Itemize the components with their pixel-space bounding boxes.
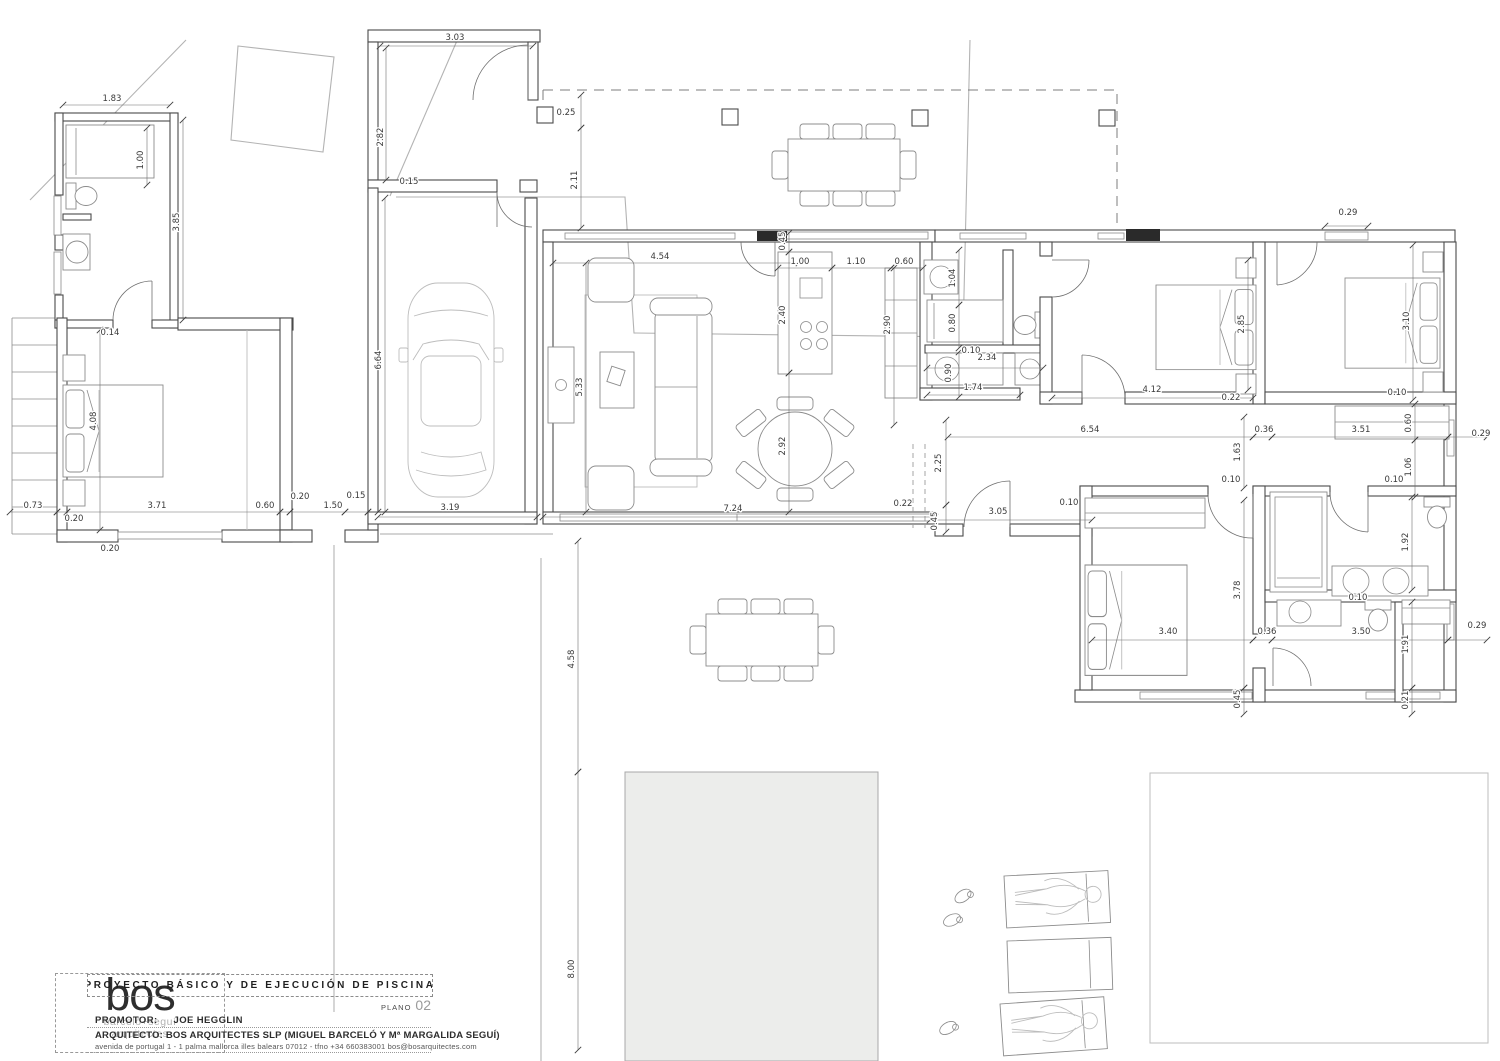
svg-text:3.19: 3.19 <box>441 503 460 513</box>
svg-text:2.92: 2.92 <box>778 437 788 456</box>
svg-text:1.92: 1.92 <box>1401 533 1411 552</box>
armchair <box>588 466 634 510</box>
svg-text:0.45: 0.45 <box>778 232 788 251</box>
plano-number: 02 <box>415 997 431 1013</box>
pool <box>625 772 878 1061</box>
svg-text:4.12: 4.12 <box>1143 385 1162 395</box>
entry-porch-room <box>368 30 540 180</box>
svg-text:0.73: 0.73 <box>24 501 43 511</box>
svg-text:0.10: 0.10 <box>1385 475 1404 485</box>
svg-text:8.00: 8.00 <box>567 960 577 979</box>
svg-text:6.54: 6.54 <box>1081 425 1100 435</box>
svg-text:0.45: 0.45 <box>1233 690 1243 709</box>
svg-text:0.60: 0.60 <box>895 257 914 267</box>
terrace-dining-table <box>772 124 916 206</box>
svg-text:4.54: 4.54 <box>651 252 670 262</box>
svg-text:0.36: 0.36 <box>1258 627 1277 637</box>
architect-address: avenida de portugal 1 - 1 palma mallorca… <box>95 1042 477 1051</box>
svg-text:0.15: 0.15 <box>347 491 366 501</box>
svg-text:2.82: 2.82 <box>376 128 386 147</box>
svg-text:3.50: 3.50 <box>1352 627 1371 637</box>
arquitecto-label: ARQUITECTO: <box>95 1030 163 1041</box>
svg-text:3.85: 3.85 <box>172 213 182 232</box>
svg-text:0.60: 0.60 <box>256 501 275 511</box>
svg-text:4.58: 4.58 <box>567 650 577 669</box>
svg-text:7.24: 7.24 <box>724 504 743 514</box>
svg-text:1.91: 1.91 <box>1401 635 1411 654</box>
svg-text:3.05: 3.05 <box>989 507 1008 517</box>
round-dining-table <box>735 397 855 501</box>
svg-text:4.08: 4.08 <box>89 412 99 431</box>
bedroom-middle <box>1052 258 1256 398</box>
svg-text:0.22: 0.22 <box>1222 393 1241 403</box>
svg-text:1.10: 1.10 <box>847 257 866 267</box>
floor-plan-sheet: 3.031.830.150.250.140.730.203.710.600.20… <box>0 0 1500 1061</box>
project-title: PROYECTO BÁSICO Y DE EJECUCIÓN DE PISCIN… <box>87 974 433 997</box>
tv-cabinet <box>548 347 574 423</box>
car <box>399 283 503 497</box>
svg-text:0.15: 0.15 <box>400 177 419 187</box>
right-paved-terrace <box>1150 773 1488 1043</box>
annex-bathroom <box>54 113 178 328</box>
svg-text:0.90: 0.90 <box>944 364 954 383</box>
svg-text:0.29: 0.29 <box>1468 621 1487 631</box>
svg-text:3.40: 3.40 <box>1159 627 1178 637</box>
sofa <box>650 298 712 476</box>
svg-text:0.60: 0.60 <box>1404 414 1414 433</box>
bathrooms-right <box>1270 492 1450 686</box>
arquitecto-line: ARQUITECTO: BOS ARQUITECTES SLP (MIGUEL … <box>95 1030 500 1041</box>
coffee-table <box>600 352 634 408</box>
divider <box>87 1052 431 1053</box>
svg-text:0.10: 0.10 <box>1060 498 1079 508</box>
svg-text:3.10: 3.10 <box>1402 312 1412 331</box>
svg-text:3.03: 3.03 <box>446 33 465 43</box>
svg-text:0.80: 0.80 <box>948 314 958 333</box>
svg-text:2.90: 2.90 <box>883 316 893 335</box>
svg-text:1.74: 1.74 <box>964 383 983 393</box>
svg-text:0.10: 0.10 <box>1388 388 1407 398</box>
svg-text:0.20: 0.20 <box>65 514 84 524</box>
svg-text:0.29: 0.29 <box>1339 208 1358 218</box>
svg-text:0.20: 0.20 <box>291 492 310 502</box>
svg-text:2.25: 2.25 <box>934 454 944 473</box>
svg-text:0.21: 0.21 <box>1401 691 1411 710</box>
divider <box>87 1027 431 1028</box>
garden-dining-table <box>690 599 834 681</box>
living-kitchen <box>543 230 935 528</box>
svg-text:0.20: 0.20 <box>101 544 120 554</box>
svg-text:0.10: 0.10 <box>1349 593 1368 603</box>
svg-text:1.00: 1.00 <box>136 151 146 170</box>
promotor-value: JOE HEGGLIN <box>174 1015 243 1026</box>
svg-text:1.63: 1.63 <box>1233 443 1243 462</box>
bath-closet <box>1402 600 1450 624</box>
svg-text:2.40: 2.40 <box>778 306 788 325</box>
plano-label: PLANO <box>381 1003 411 1012</box>
svg-text:0.14: 0.14 <box>101 328 120 338</box>
floor-plan-drawing: 3.031.830.150.250.140.730.203.710.600.20… <box>0 0 1500 1061</box>
bedroom-right <box>1277 242 1449 439</box>
svg-text:3.78: 3.78 <box>1233 581 1243 600</box>
svg-text:6.64: 6.64 <box>374 351 384 370</box>
laundry-counter <box>927 300 1003 342</box>
svg-text:3.71: 3.71 <box>148 501 167 511</box>
armchair <box>588 258 634 302</box>
lower-bath-sink <box>1277 600 1341 626</box>
svg-text:0.29: 0.29 <box>1472 429 1491 439</box>
garage <box>368 180 553 534</box>
arquitecto-value: BOS ARQUITECTES SLP (MIGUEL BARCELÓ Y Mª… <box>166 1030 500 1041</box>
svg-text:1.50: 1.50 <box>324 501 343 511</box>
sun-loungers <box>937 871 1112 1056</box>
svg-text:1.83: 1.83 <box>103 94 122 104</box>
svg-text:0.36: 0.36 <box>1255 425 1274 435</box>
svg-text:2.34: 2.34 <box>978 353 997 363</box>
svg-text:2.85: 2.85 <box>1237 315 1247 334</box>
svg-text:1.06: 1.06 <box>1404 458 1414 477</box>
double-sink-counter <box>1332 566 1428 596</box>
svg-text:1.04: 1.04 <box>948 269 958 288</box>
promotor-label: PROMOTOR: <box>95 1015 158 1026</box>
svg-text:3.51: 3.51 <box>1352 425 1371 435</box>
svg-text:0.25: 0.25 <box>557 108 576 118</box>
svg-text:0.45: 0.45 <box>930 512 940 531</box>
svg-text:1.00: 1.00 <box>791 257 810 267</box>
svg-text:2.11: 2.11 <box>570 171 580 190</box>
sheet-number: PLANO02 <box>300 997 431 1015</box>
promotor-line: PROMOTOR:JOE HEGGLIN <box>95 1015 243 1026</box>
utility-rooms <box>920 242 1045 400</box>
svg-text:5.33: 5.33 <box>575 378 585 397</box>
shower <box>1270 492 1327 592</box>
svg-text:0.22: 0.22 <box>894 499 913 509</box>
svg-text:0.10: 0.10 <box>1222 475 1241 485</box>
